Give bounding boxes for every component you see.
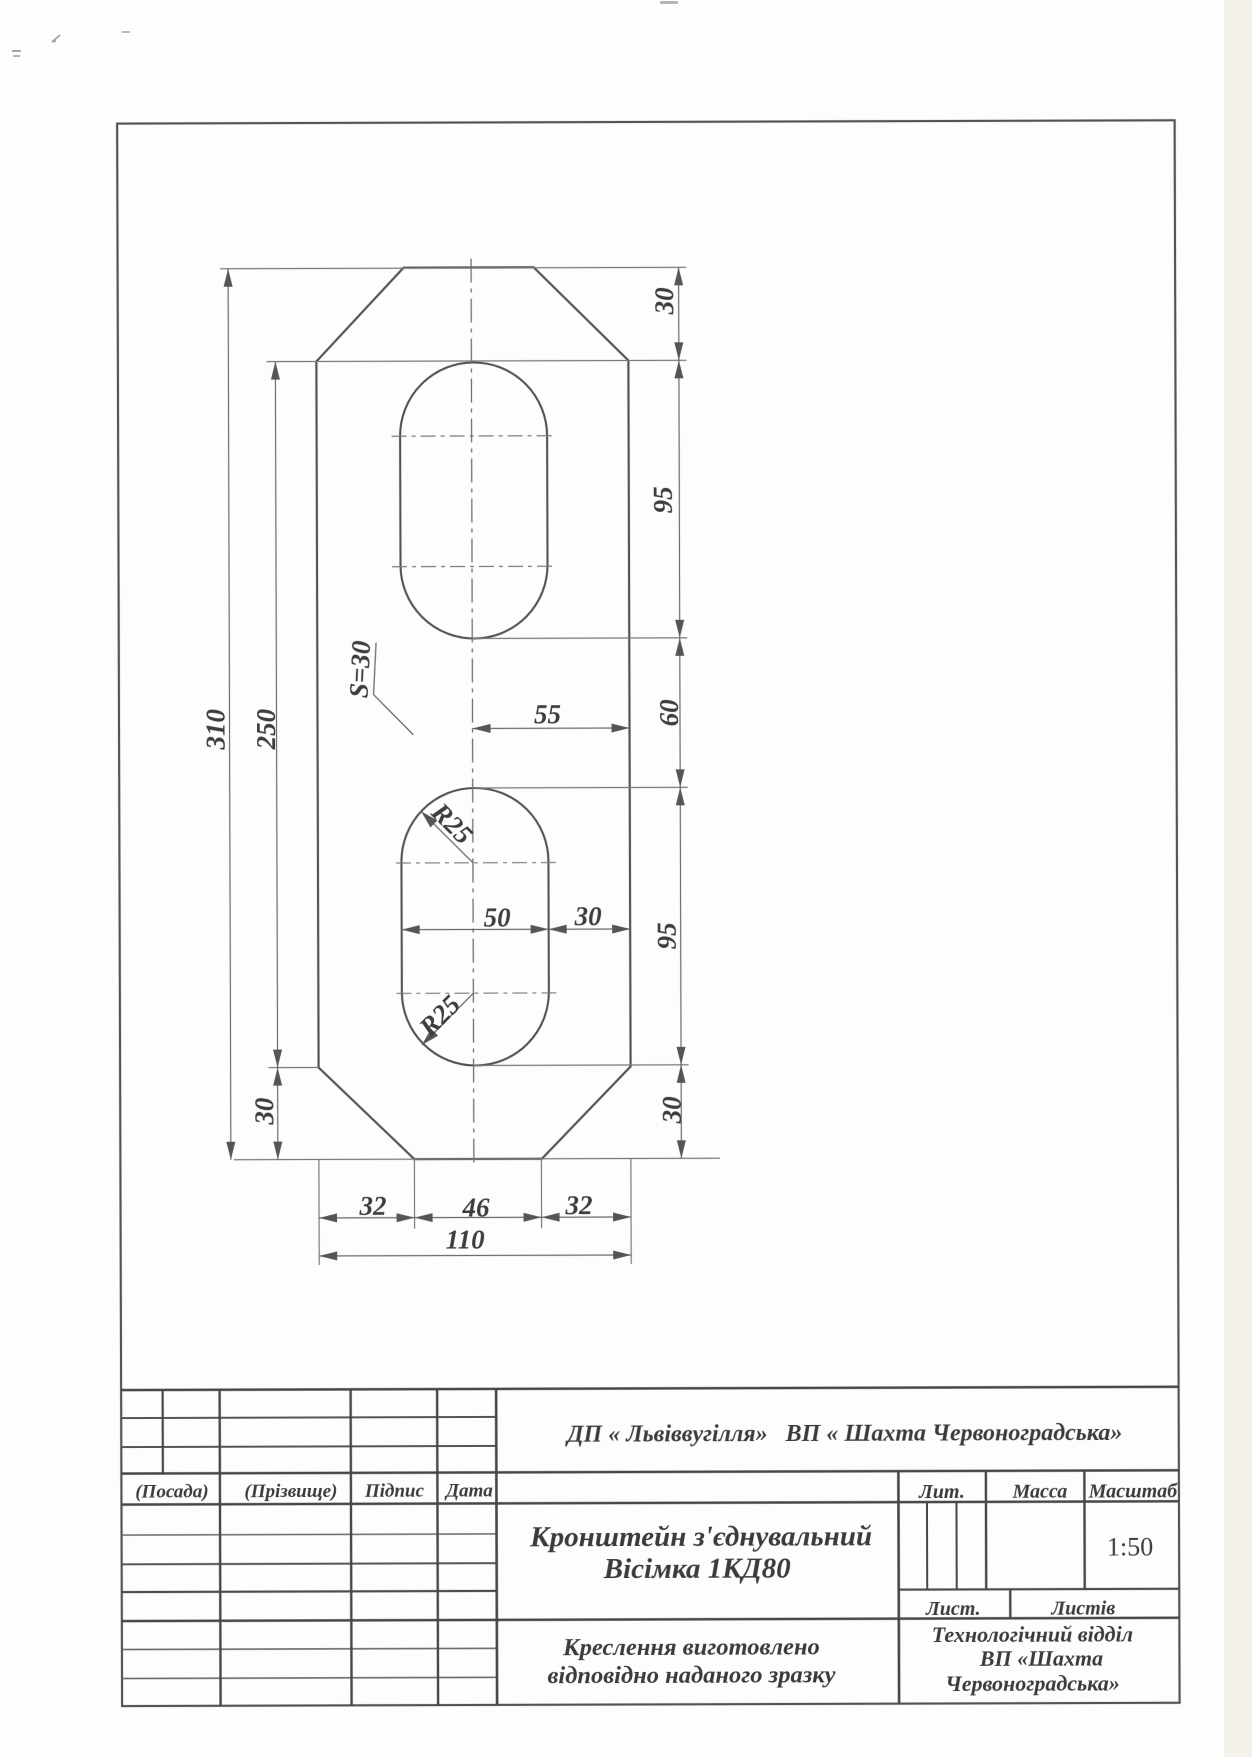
svg-text:Підпис: Підпис [364, 1481, 425, 1502]
svg-text:Креслення виготовлено: Креслення виготовлено [562, 1633, 820, 1661]
svg-text:30: 30 [657, 1096, 687, 1125]
svg-text:50: 50 [484, 902, 512, 932]
svg-text:(Посада): (Посада) [135, 1481, 208, 1502]
svg-text:Лит.: Лит. [918, 1481, 965, 1503]
svg-text:Масштаб: Масштаб [1088, 1480, 1179, 1502]
svg-text:Кронштейн з'єднувальний: Кронштейн з'єднувальний [529, 1520, 872, 1553]
svg-text:1:50: 1:50 [1107, 1532, 1153, 1561]
svg-text:32: 32 [358, 1191, 386, 1221]
svg-text:Технологічний відділ: Технологічний відділ [932, 1621, 1133, 1647]
svg-text:250: 250 [251, 708, 281, 750]
svg-text:310: 310 [200, 708, 230, 750]
svg-text:Червоноградська»: Червоноградська» [945, 1670, 1120, 1696]
svg-text:60: 60 [654, 699, 684, 727]
svg-text:Дата: Дата [444, 1480, 493, 1501]
svg-text:відповідно наданого зразку: відповідно наданого зразку [547, 1661, 835, 1689]
svg-text:110: 110 [446, 1224, 486, 1254]
svg-text:46: 46 [461, 1192, 490, 1222]
svg-text:Вісімка 1КД80: Вісімка 1КД80 [603, 1552, 791, 1585]
svg-text:(Прізвище): (Прізвище) [244, 1481, 337, 1502]
svg-text:30: 30 [249, 1097, 279, 1126]
svg-text:Масса: Масса [1012, 1481, 1068, 1503]
svg-text:S=30: S=30 [343, 639, 376, 698]
svg-text:30: 30 [649, 287, 679, 316]
svg-text:Листів: Листів [1050, 1597, 1115, 1619]
svg-text:95: 95 [648, 486, 678, 513]
svg-text:95: 95 [652, 922, 682, 949]
svg-text:30: 30 [574, 901, 603, 931]
svg-text:ДП « Львіввугілля» ВП « Шахт: ДП « Львіввугілля» ВП « Шахта Червоногра… [565, 1420, 1122, 1448]
svg-text:ВП «Шахта: ВП «Шахта [979, 1646, 1103, 1671]
svg-text:55: 55 [534, 699, 561, 729]
svg-text:32: 32 [564, 1190, 592, 1220]
svg-text:Лист.: Лист. [925, 1598, 981, 1620]
